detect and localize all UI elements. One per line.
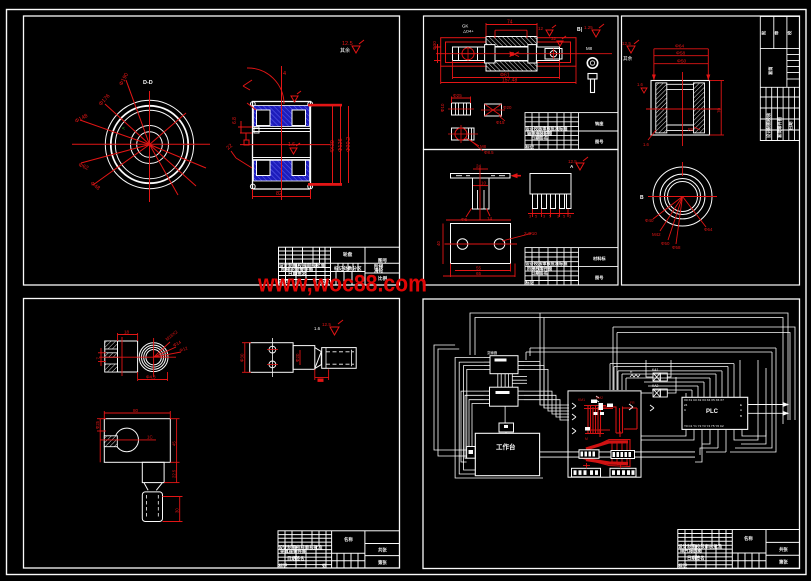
svg-text:轮盘: 轮盘	[343, 251, 353, 258]
svg-text:△D4+: △D4+	[463, 29, 474, 34]
svg-text:日期签名: 日期签名	[687, 555, 705, 562]
svg-text:A: A	[740, 408, 742, 412]
svg-text:32: 32	[551, 36, 557, 41]
svg-text:1C: 1C	[147, 435, 153, 440]
svg-text:Φ90.2: Φ90.2	[346, 137, 352, 152]
svg-text:图号: 图号	[595, 138, 603, 145]
svg-text:FR: FR	[630, 401, 635, 405]
svg-text:M8: M8	[586, 46, 593, 51]
svg-text:24: 24	[684, 403, 688, 407]
svg-text:日期签名: 日期签名	[531, 270, 548, 277]
svg-text:12: 12	[538, 26, 544, 31]
svg-text:65: 65	[476, 271, 482, 276]
svg-text:55: 55	[476, 266, 482, 271]
svg-text:12.5: 12.5	[322, 322, 331, 327]
svg-text:名称: 名称	[344, 536, 353, 543]
svg-text:www,woc88.com: www,woc88.com	[257, 271, 427, 298]
svg-text:1.25: 1.25	[584, 25, 593, 30]
svg-text:M: M	[585, 437, 588, 441]
svg-text:R5: R5	[688, 127, 694, 132]
svg-text:4X30: 4X30	[330, 140, 336, 153]
svg-text:第张: 第张	[779, 559, 788, 566]
svg-text:Φ58: Φ58	[672, 245, 681, 250]
svg-text:套筒零件图: 套筒零件图	[776, 117, 783, 138]
svg-text:74: 74	[507, 20, 513, 26]
svg-text:标记: 标记	[525, 144, 535, 151]
svg-text:KA2: KA2	[652, 384, 659, 388]
svg-text:1.6: 1.6	[643, 142, 649, 147]
svg-text:电气接线图: 电气接线图	[680, 547, 703, 554]
svg-text:工作台: 工作台	[496, 442, 516, 451]
svg-text:22.5: 22.5	[172, 469, 177, 478]
svg-text:82: 82	[276, 191, 282, 197]
svg-text:Φ25: Φ25	[453, 93, 462, 98]
svg-text:图号: 图号	[595, 274, 603, 281]
svg-text:KM2: KM2	[596, 396, 603, 400]
svg-text:KA1: KA1	[652, 368, 659, 372]
svg-text:Φ20: Φ20	[503, 105, 512, 110]
svg-text:12.5: 12.5	[622, 41, 631, 46]
svg-text:Φ6: Φ6	[461, 217, 468, 222]
svg-text:图号: 图号	[378, 257, 388, 264]
svg-text:Φ25: Φ25	[95, 420, 100, 429]
svg-text:日期签名: 日期签名	[287, 555, 305, 562]
svg-text:1.6: 1.6	[314, 326, 321, 331]
svg-text:E: E	[740, 403, 742, 407]
svg-text:PLC: PLC	[706, 409, 719, 415]
svg-text:Φ58: Φ58	[676, 51, 685, 57]
svg-text:6.8: 6.8	[232, 117, 238, 124]
svg-text:Φ30: Φ30	[240, 353, 245, 362]
svg-text:M8: M8	[480, 144, 487, 149]
svg-text:KM1: KM1	[578, 398, 585, 402]
svg-text:Φ4.3: Φ4.3	[146, 375, 156, 380]
svg-text:审: 审	[773, 31, 780, 35]
svg-text:<: <	[122, 126, 125, 132]
svg-text:1.6: 1.6	[637, 82, 643, 87]
svg-text:共张: 共张	[779, 546, 788, 553]
svg-text:80: 80	[133, 408, 139, 413]
svg-text:Φ126: Φ126	[338, 138, 344, 152]
svg-text:第张: 第张	[378, 559, 387, 566]
svg-text:处: 处	[321, 563, 327, 570]
svg-text:Φ40: Φ40	[645, 218, 654, 223]
svg-text:45: 45	[172, 441, 177, 446]
svg-text:Φ20: Φ20	[295, 353, 300, 362]
svg-text:钠座: 钠座	[595, 120, 604, 127]
svg-text:日期签名: 日期签名	[531, 135, 548, 142]
svg-text:40: 40	[436, 241, 441, 246]
svg-text:日期: 日期	[787, 122, 794, 130]
svg-text:Φ10: Φ10	[440, 103, 445, 112]
svg-text:名称: 名称	[744, 535, 753, 542]
svg-text:夹具座零件图: 夹具座零件图	[280, 548, 307, 555]
svg-text:其余: 其余	[340, 47, 350, 54]
svg-text:Φ64: Φ64	[675, 44, 684, 50]
svg-text:D-D: D-D	[143, 80, 153, 86]
svg-text:变鯓器: 变鯓器	[487, 350, 498, 355]
svg-text:B: B	[740, 414, 742, 418]
svg-text:30: 30	[175, 508, 180, 513]
svg-text:12.5: 12.5	[342, 41, 353, 47]
svg-text:10: 10	[481, 181, 487, 186]
svg-text:标记: 标记	[525, 279, 535, 286]
svg-text:Φ64: Φ64	[704, 227, 713, 232]
svg-text:18: 18	[124, 330, 130, 335]
svg-text:标记: 标记	[278, 563, 288, 570]
svg-text:157.48: 157.48	[502, 78, 518, 84]
svg-text:标记: 标记	[677, 562, 687, 569]
svg-text:Φ50: Φ50	[661, 241, 670, 246]
svg-text:设计制图校核: 设计制图校核	[765, 112, 772, 138]
svg-text:24: 24	[476, 164, 482, 169]
svg-text:共张: 共张	[378, 547, 387, 554]
svg-text:2-Φ10: 2-Φ10	[524, 231, 537, 236]
svg-text:1.6: 1.6	[288, 142, 295, 148]
svg-text:材料标: 材料标	[592, 255, 606, 262]
svg-text:Φ30: Φ30	[432, 41, 437, 50]
svg-text:Y0 C1 Y1 Y2 Y3 Y4 Y5 Y6 C2: Y0 C1 Y1 Y2 Y3 Y4 Y5 Y6 C2	[684, 424, 724, 428]
svg-text:套筒: 套筒	[767, 66, 774, 75]
svg-text:Φ15: Φ15	[496, 120, 505, 125]
svg-text:B|: B|	[577, 27, 583, 33]
svg-text:70: 70	[717, 107, 722, 113]
svg-text:Φ50: Φ50	[677, 59, 686, 65]
svg-text:B: B	[640, 195, 644, 201]
svg-text:M42: M42	[652, 232, 661, 237]
svg-text:X0 X1 C0 X2 X3 X4 X5 X6 X7: X0 X1 C0 X2 X3 X4 X5 X6 X7	[684, 398, 724, 402]
svg-text:其余: 其余	[623, 55, 633, 62]
svg-text:4: 4	[283, 71, 286, 77]
svg-text:Φ8.5: Φ8.5	[484, 150, 494, 155]
